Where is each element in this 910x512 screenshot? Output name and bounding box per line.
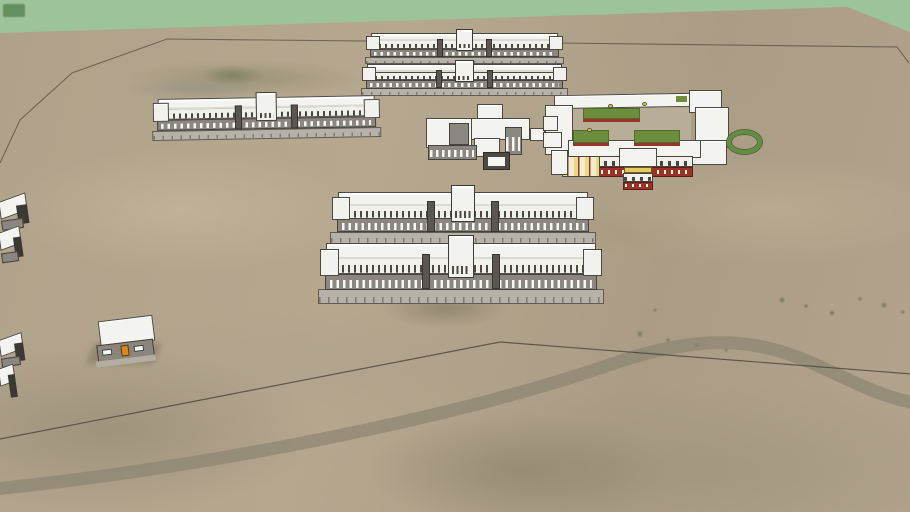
end-pavilion bbox=[153, 103, 169, 122]
annex-panel bbox=[488, 157, 505, 166]
end-pavilion bbox=[549, 36, 563, 50]
yellow-arcade bbox=[562, 156, 600, 178]
center-tower bbox=[456, 29, 473, 51]
lawn-3 bbox=[634, 130, 680, 147]
viewport-3d[interactable] bbox=[0, 0, 910, 512]
center-tower bbox=[455, 60, 473, 82]
stair-shaft bbox=[427, 201, 435, 231]
mid-dorm-2[interactable] bbox=[322, 243, 600, 304]
end-pavilion bbox=[576, 197, 594, 220]
yellow-dot bbox=[642, 102, 647, 106]
central-building[interactable] bbox=[424, 100, 550, 172]
yellow-dot bbox=[608, 104, 613, 108]
end-pavilion bbox=[364, 99, 380, 118]
roof-recess bbox=[449, 123, 469, 145]
terrace-wall bbox=[361, 88, 568, 96]
lawn-2 bbox=[573, 130, 609, 147]
grass-patch-dark-1 bbox=[3, 4, 25, 17]
protrusion-roof bbox=[619, 148, 657, 167]
stair-shaft bbox=[487, 70, 493, 89]
end-pavilion bbox=[332, 197, 350, 220]
north-dorm-2[interactable] bbox=[364, 64, 565, 96]
west-stub-2 bbox=[543, 132, 562, 149]
terrace-wall bbox=[318, 289, 604, 304]
end-pavilion bbox=[362, 67, 376, 81]
protrusion-red-base bbox=[623, 182, 653, 190]
house-door bbox=[121, 345, 130, 356]
stair-shaft bbox=[436, 70, 442, 89]
traffic-circle[interactable] bbox=[727, 130, 762, 154]
front-wall bbox=[428, 145, 477, 160]
west-block[interactable] bbox=[155, 95, 379, 141]
end-pavilion bbox=[320, 249, 339, 276]
roof-garden-strip bbox=[676, 96, 687, 101]
west-stub-1 bbox=[543, 116, 558, 131]
east-wall bbox=[505, 127, 523, 154]
lawn-1 bbox=[583, 108, 640, 123]
southwest-block bbox=[551, 150, 568, 175]
center-tower bbox=[256, 91, 277, 121]
stair-shaft bbox=[291, 104, 298, 128]
stair-shaft bbox=[437, 39, 443, 57]
center-tower bbox=[448, 235, 473, 278]
end-pavilion bbox=[583, 249, 602, 276]
stair-shaft bbox=[491, 201, 499, 231]
end-pavilion bbox=[366, 36, 380, 50]
yellow-dot bbox=[587, 128, 592, 132]
small-house[interactable] bbox=[95, 318, 157, 368]
south-wing-protrusion bbox=[619, 148, 657, 191]
center-tower bbox=[451, 185, 474, 221]
edge-building-1[interactable] bbox=[0, 195, 30, 231]
stair-shaft bbox=[486, 39, 492, 57]
stair-shaft bbox=[235, 105, 242, 129]
house-window bbox=[103, 349, 114, 357]
south-annex bbox=[483, 152, 509, 170]
house-window bbox=[134, 345, 145, 353]
stair-shaft bbox=[422, 254, 430, 289]
end-pavilion bbox=[553, 67, 567, 81]
protrusion-windows bbox=[623, 173, 653, 182]
courtyard-complex[interactable] bbox=[543, 88, 733, 192]
stair-shaft bbox=[492, 254, 500, 289]
north-wing-roof bbox=[554, 93, 691, 109]
